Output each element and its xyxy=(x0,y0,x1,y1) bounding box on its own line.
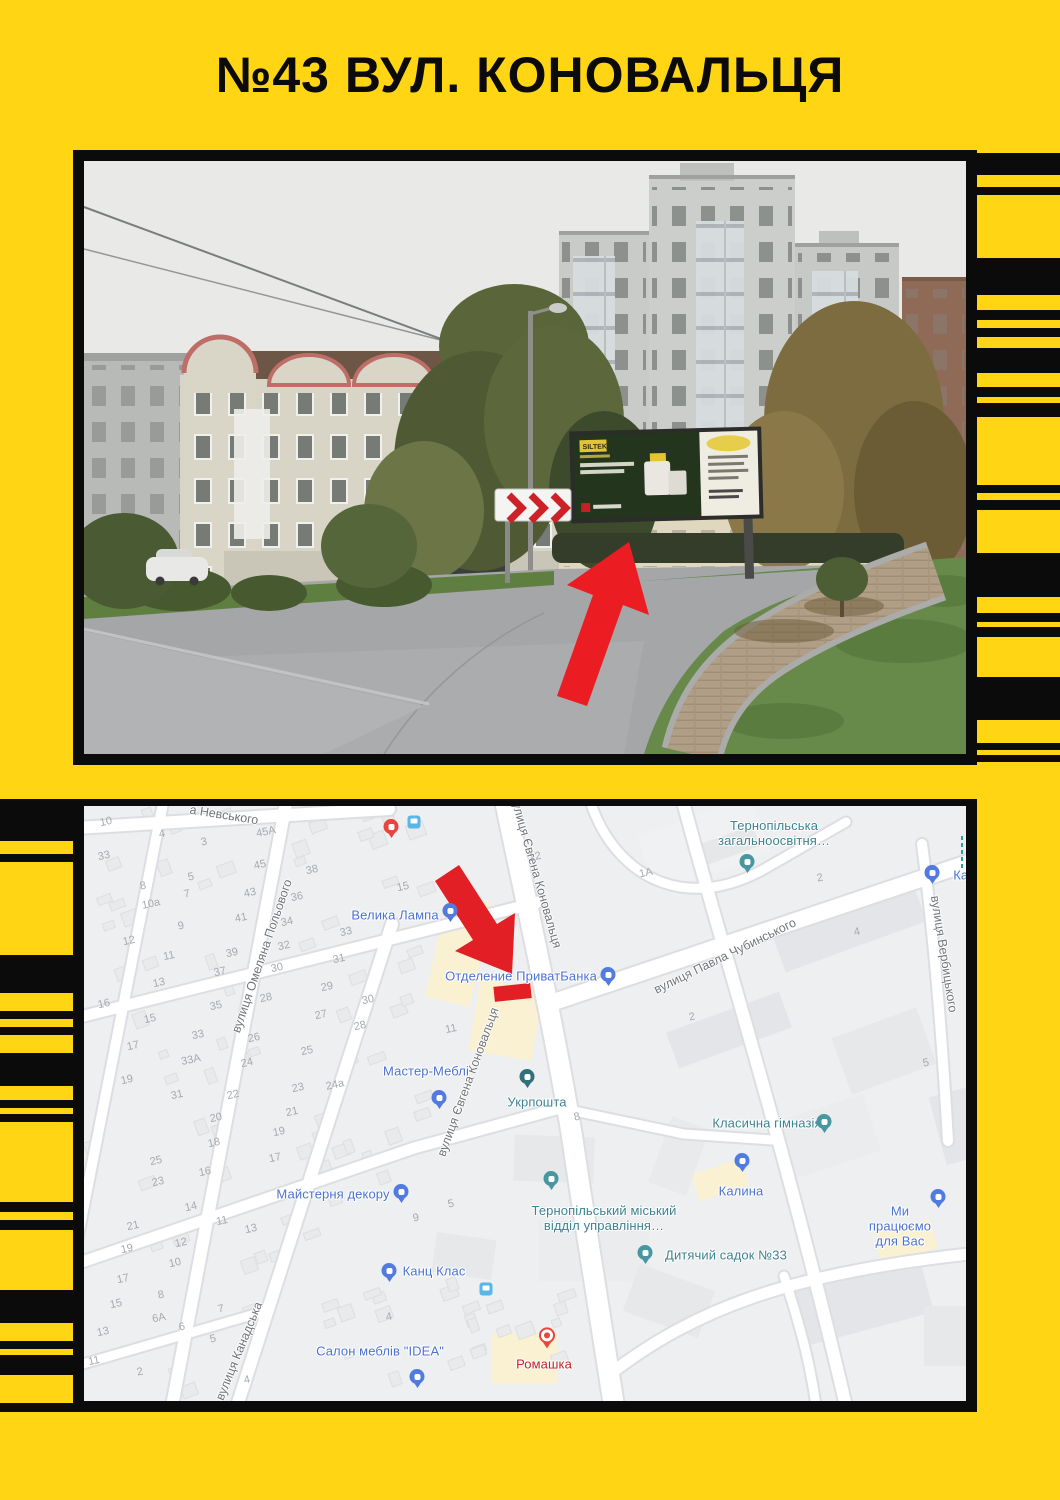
barcode-stripe xyxy=(0,1403,76,1412)
map-house-number: 37 xyxy=(213,965,227,979)
barcode-stripe xyxy=(0,1027,76,1035)
barcode-stripe xyxy=(975,187,1060,195)
map-poi-label: Кана xyxy=(953,869,966,884)
map-pin-post-icon xyxy=(520,1069,535,1084)
map-pin-shop-icon xyxy=(925,865,940,880)
map-house-number: 2 xyxy=(816,871,824,884)
barcode-stripe xyxy=(975,500,1060,510)
map-pin-shop-icon xyxy=(382,1263,397,1278)
barcode-stripe xyxy=(975,387,1060,397)
map-street-label: а Невського xyxy=(189,806,260,827)
map-house-number: 43 xyxy=(243,886,257,900)
map-house-number: 31 xyxy=(332,952,346,966)
map-poi-label: Дитячий садок №33 xyxy=(665,1249,787,1264)
map-pin-school-icon xyxy=(817,1114,832,1129)
barcode-stripe xyxy=(0,1355,76,1375)
map-house-number: 5 xyxy=(187,870,195,883)
map-house-number: 9 xyxy=(177,919,185,932)
map-house-number: 33 xyxy=(339,925,353,939)
map-poi-label: Ромашка xyxy=(516,1358,572,1373)
map-house-number: 34 xyxy=(280,915,294,929)
map-poi-label: Ми працюємо для Вас xyxy=(867,1205,933,1250)
barcode-stripe xyxy=(0,1035,76,1053)
map-house-number: 45 xyxy=(253,858,267,872)
map-house-number: 14 xyxy=(184,1200,198,1214)
map-house-number: 5 xyxy=(447,1197,455,1210)
map-house-number: 10 xyxy=(168,1256,182,1270)
map-house-number: 4 xyxy=(853,925,861,938)
map-poi-label: Укрпошта xyxy=(507,1096,566,1111)
map-street-label: вулиця Вербицького xyxy=(928,895,960,1014)
map-house-number: 4 xyxy=(243,1373,251,1386)
location-map: а Невськоговулиця Омеляна Польовоговулиц… xyxy=(73,799,977,1412)
map-house-number: 38 xyxy=(305,863,319,877)
map-house-number: 10а xyxy=(141,896,161,912)
map-pin-kinder-icon xyxy=(638,1245,653,1260)
map-poi-label: Салон меблів "IDEA" xyxy=(316,1345,444,1360)
map-pin-shop-icon xyxy=(443,903,458,918)
map-street-label: вулиця Євгена Коновальця xyxy=(508,806,565,950)
map-house-number: 19 xyxy=(120,1242,134,1256)
map-house-number: 13 xyxy=(152,976,166,990)
street-photo: SILTEK xyxy=(73,150,977,765)
barcode-stripe xyxy=(0,1019,76,1027)
map-house-number: 11 xyxy=(444,1022,458,1036)
barcode-stripe xyxy=(975,553,1060,597)
map-house-number: 5 xyxy=(209,1332,217,1345)
map-house-number: 17 xyxy=(126,1039,140,1053)
map-house-number: 4 xyxy=(158,827,166,840)
map-pin-shop-icon xyxy=(410,1369,425,1384)
barcode-stripe xyxy=(0,1323,76,1341)
map-labels-overlay: а Невськоговулиця Омеляна Польовоговулиц… xyxy=(84,806,966,1401)
map-poi-label: Мастер-Меблі xyxy=(383,1065,469,1080)
barcode-stripe xyxy=(0,993,76,1011)
map-house-number: 10 xyxy=(99,815,113,829)
map-house-number: 32 xyxy=(277,939,291,953)
barcode-stripe xyxy=(0,1202,76,1212)
barcode-stripe xyxy=(975,613,1060,622)
map-poi-label: Майстерня декору xyxy=(276,1188,389,1203)
map-house-number: 9 xyxy=(412,1211,420,1224)
map-house-number: 15 xyxy=(143,1012,157,1026)
bus-stop-icon xyxy=(408,816,421,829)
map-house-number: 8 xyxy=(157,1288,165,1301)
barcode-stripes-right xyxy=(975,153,1060,790)
map-house-number: 16 xyxy=(97,997,111,1011)
map-house-number: 25 xyxy=(300,1044,314,1058)
map-house-number: 29 xyxy=(320,980,334,994)
barcode-stripe xyxy=(0,1086,76,1100)
map-pin-civic-icon xyxy=(544,1171,559,1186)
map-house-number: 8 xyxy=(139,879,147,892)
barcode-stripe xyxy=(975,348,1060,373)
map-house-number: 2 xyxy=(136,1365,144,1378)
map-house-number: 23 xyxy=(291,1081,305,1095)
barcode-stripe xyxy=(0,841,76,854)
map-house-number: 30 xyxy=(361,993,375,1007)
barcode-stripe xyxy=(975,258,1060,295)
map-house-number: 31 xyxy=(170,1088,184,1102)
map-pin-school-icon xyxy=(740,854,755,869)
map-house-number: 12 xyxy=(174,1236,188,1250)
map-house-number: 2 xyxy=(688,1010,696,1023)
map-poi-label: Велика Лампа xyxy=(351,909,438,924)
map-house-number: 27 xyxy=(314,1008,328,1022)
barcode-stripe xyxy=(0,1375,76,1403)
map-house-number: 11 xyxy=(215,1214,229,1228)
map-house-number: 11 xyxy=(87,1354,101,1368)
map-house-number: 13 xyxy=(244,1222,258,1236)
barcode-stripe xyxy=(0,1220,76,1230)
map-pin-bank-icon xyxy=(601,967,616,982)
barcode-stripe xyxy=(0,1114,76,1122)
map-house-number: 41 xyxy=(234,911,248,925)
map-house-number: 22 xyxy=(226,1088,240,1102)
barcode-stripe xyxy=(0,1290,76,1323)
map-house-number: 17 xyxy=(116,1272,130,1286)
map-pin-shop-icon xyxy=(394,1184,409,1199)
map-house-number: 8 xyxy=(573,1110,581,1123)
barcode-stripe xyxy=(975,677,1060,720)
barcode-stripe xyxy=(975,373,1060,387)
barcode-stripe xyxy=(975,743,1060,750)
map-house-number: 19 xyxy=(272,1125,286,1139)
map-house-number: 18 xyxy=(207,1136,221,1150)
map-pin-cart-icon xyxy=(931,1189,946,1204)
map-house-number: 24а xyxy=(325,1077,345,1093)
map-house-number: 15 xyxy=(396,880,410,894)
barcode-stripe xyxy=(975,493,1060,500)
billboard-brand: SILTEK xyxy=(583,443,608,451)
map-poi-label: Тернопільський міський відділ управління… xyxy=(532,1204,677,1234)
map-house-number: 3 xyxy=(200,835,208,848)
map-house-number: 12 xyxy=(122,934,136,948)
map-house-number: 6 xyxy=(178,1320,186,1333)
barcode-stripe xyxy=(0,1100,76,1108)
page-title: №43 ВУЛ. КОНОВАЛЬЦЯ xyxy=(0,48,1060,103)
map-house-number: 30 xyxy=(270,961,284,975)
barcode-stripe xyxy=(0,1212,76,1220)
barcode-stripe xyxy=(0,1230,76,1290)
map-house-number: 1А xyxy=(638,866,654,881)
barcode-stripe xyxy=(975,627,1060,637)
barcode-stripe xyxy=(0,854,76,862)
map-house-number: 33 xyxy=(97,849,111,863)
barcode-stripe xyxy=(975,417,1060,485)
barcode-stripe xyxy=(0,1011,76,1019)
barcode-stripe xyxy=(975,597,1060,613)
map-pin-red-icon xyxy=(384,819,399,834)
barcode-stripe xyxy=(975,328,1060,337)
barcode-stripe xyxy=(975,755,1060,762)
map-house-number: 35 xyxy=(209,999,223,1013)
map-poi-label: Тернопільська загальноосвітня… xyxy=(718,819,830,849)
barcode-stripe xyxy=(0,1122,76,1202)
map-house-number: 23 xyxy=(151,1175,165,1189)
barcode-stripe xyxy=(975,337,1060,348)
barcode-stripe xyxy=(975,320,1060,328)
map-house-number: 24 xyxy=(240,1056,254,1070)
map-house-number: 36 xyxy=(290,890,304,904)
map-house-number: 28 xyxy=(259,991,273,1005)
barcode-stripe xyxy=(975,485,1060,493)
map-poi-label: Отделение ПриватБанка xyxy=(445,970,597,985)
map-house-number: 17 xyxy=(268,1151,282,1165)
map-house-number: 13 xyxy=(96,1325,110,1339)
street-photo-scene: SILTEK xyxy=(84,161,966,754)
map-house-number: 33 xyxy=(191,1028,205,1042)
map-house-number: 16 xyxy=(198,1165,212,1179)
map-house-number: 25 xyxy=(149,1154,163,1168)
barcode-stripe xyxy=(975,153,1060,175)
barcode-stripe xyxy=(975,195,1060,258)
map-poi-label: Калина xyxy=(719,1185,764,1200)
map-pin-shop-icon xyxy=(432,1090,447,1105)
map-house-number: 20 xyxy=(209,1111,223,1125)
map-house-number: 19 xyxy=(120,1073,134,1087)
map-house-number: 21 xyxy=(285,1105,299,1119)
map-house-number: 12 xyxy=(528,850,542,864)
map-house-number: 4 xyxy=(385,1310,393,1323)
map-house-number: 28 xyxy=(353,1019,367,1033)
barcode-stripe xyxy=(975,310,1060,320)
map-house-number: 6А xyxy=(151,1311,167,1326)
barcode-stripe xyxy=(0,955,76,993)
map-house-number: 5 xyxy=(922,1056,930,1069)
map-house-number: 7 xyxy=(183,887,191,900)
barcode-stripe xyxy=(0,799,76,841)
barcode-stripe xyxy=(0,1053,76,1086)
map-house-number: 39 xyxy=(225,946,239,960)
barcode-stripe xyxy=(0,862,76,955)
map-house-number: 45А xyxy=(255,824,277,840)
map-poi-label: Канц Клас xyxy=(403,1265,466,1280)
map-street-label: вулиця Павла Чубинського xyxy=(652,915,799,996)
map-house-number: 7 xyxy=(217,1302,225,1315)
map-house-number: 11 xyxy=(162,949,176,963)
barcode-stripe xyxy=(0,1341,76,1349)
map-house-number: 26 xyxy=(247,1031,261,1045)
barcode-stripes-left xyxy=(0,799,76,1412)
map-pin-shop-icon xyxy=(735,1153,750,1168)
map-house-number: 33А xyxy=(180,1052,202,1068)
map-poi-label: Класична гімназія xyxy=(712,1117,821,1132)
barcode-stripe xyxy=(975,175,1060,187)
barcode-stripe xyxy=(975,403,1060,417)
barcode-stripe xyxy=(975,637,1060,677)
location-sheet: №43 ВУЛ. КОНОВАЛЬЦЯ xyxy=(0,0,1060,1500)
map-house-number: 15 xyxy=(109,1297,123,1311)
map-pin-flower-icon xyxy=(539,1327,555,1343)
bus-stop-icon xyxy=(480,1283,493,1296)
barcode-stripe xyxy=(975,720,1060,743)
barcode-stripe xyxy=(975,295,1060,310)
map-house-number: 21 xyxy=(126,1219,140,1233)
barcode-stripe xyxy=(975,510,1060,553)
